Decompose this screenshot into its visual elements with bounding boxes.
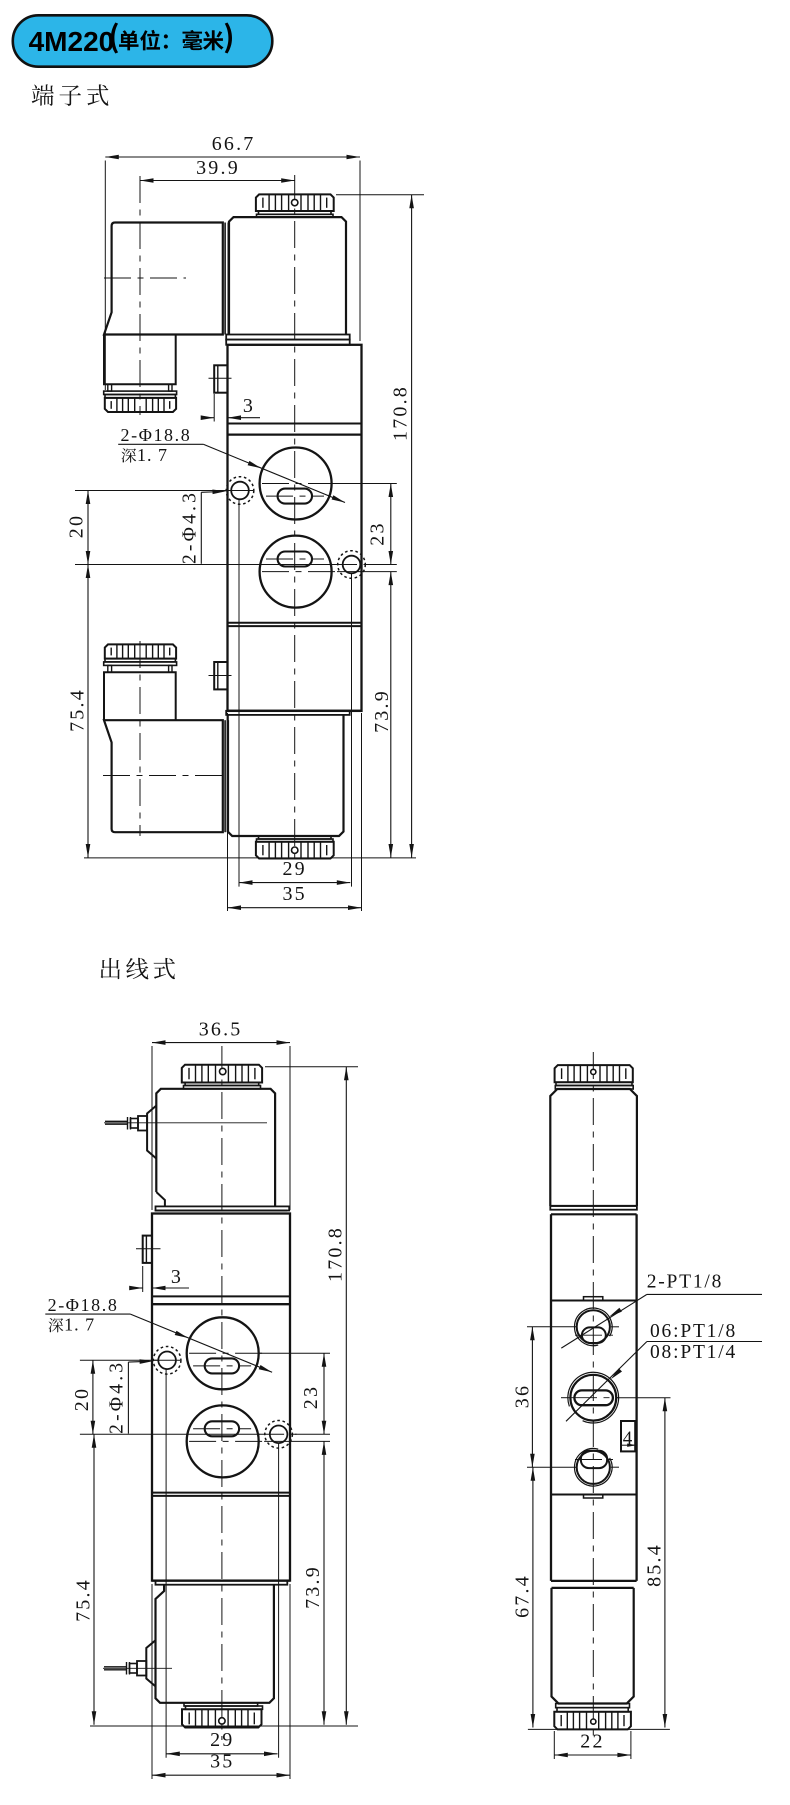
svg-text:73.9: 73.9 bbox=[371, 689, 393, 733]
svg-text:36.5: 36.5 bbox=[199, 1019, 243, 1041]
svg-text:29: 29 bbox=[282, 858, 306, 880]
svg-text:85.4: 85.4 bbox=[644, 1543, 666, 1587]
svg-text:2-Φ18.8: 2-Φ18.8 bbox=[121, 425, 192, 445]
svg-text:2-Φ18.8: 2-Φ18.8 bbox=[48, 1295, 119, 1315]
svg-text:3: 3 bbox=[171, 1266, 183, 1288]
svg-text:1. 7: 1. 7 bbox=[137, 445, 168, 465]
svg-text:170.8: 170.8 bbox=[390, 385, 412, 441]
svg-text:2-Φ4.3: 2-Φ4.3 bbox=[180, 490, 201, 564]
svg-text:20: 20 bbox=[71, 1387, 93, 1411]
svg-text:67.4: 67.4 bbox=[512, 1574, 534, 1618]
svg-text:29: 29 bbox=[210, 1729, 234, 1751]
svg-text:23: 23 bbox=[300, 1385, 322, 1409]
svg-text:75.4: 75.4 bbox=[73, 1578, 95, 1622]
svg-text:2-PT1/8: 2-PT1/8 bbox=[647, 1272, 724, 1293]
svg-text:35: 35 bbox=[282, 883, 306, 905]
svg-text:06:PT1/8: 06:PT1/8 bbox=[650, 1321, 737, 1342]
svg-text:23: 23 bbox=[367, 521, 389, 545]
svg-text:35: 35 bbox=[210, 1751, 234, 1773]
svg-text:3: 3 bbox=[243, 395, 255, 417]
svg-text:73.9: 73.9 bbox=[302, 1565, 324, 1609]
svg-text:4M220: 4M220 bbox=[29, 26, 115, 57]
svg-text:20: 20 bbox=[66, 514, 88, 538]
svg-text:08:PT1/4: 08:PT1/4 bbox=[650, 1342, 737, 1363]
svg-text:36: 36 bbox=[512, 1384, 534, 1408]
svg-text:1. 7: 1. 7 bbox=[64, 1315, 95, 1335]
svg-text:75.4: 75.4 bbox=[67, 688, 89, 732]
svg-text:66.7: 66.7 bbox=[212, 133, 256, 155]
svg-text:2-Φ4.3: 2-Φ4.3 bbox=[107, 1360, 128, 1434]
svg-text:170.8: 170.8 bbox=[325, 1226, 347, 1282]
svg-text:39.9: 39.9 bbox=[196, 157, 240, 179]
svg-text:22: 22 bbox=[580, 1731, 604, 1753]
